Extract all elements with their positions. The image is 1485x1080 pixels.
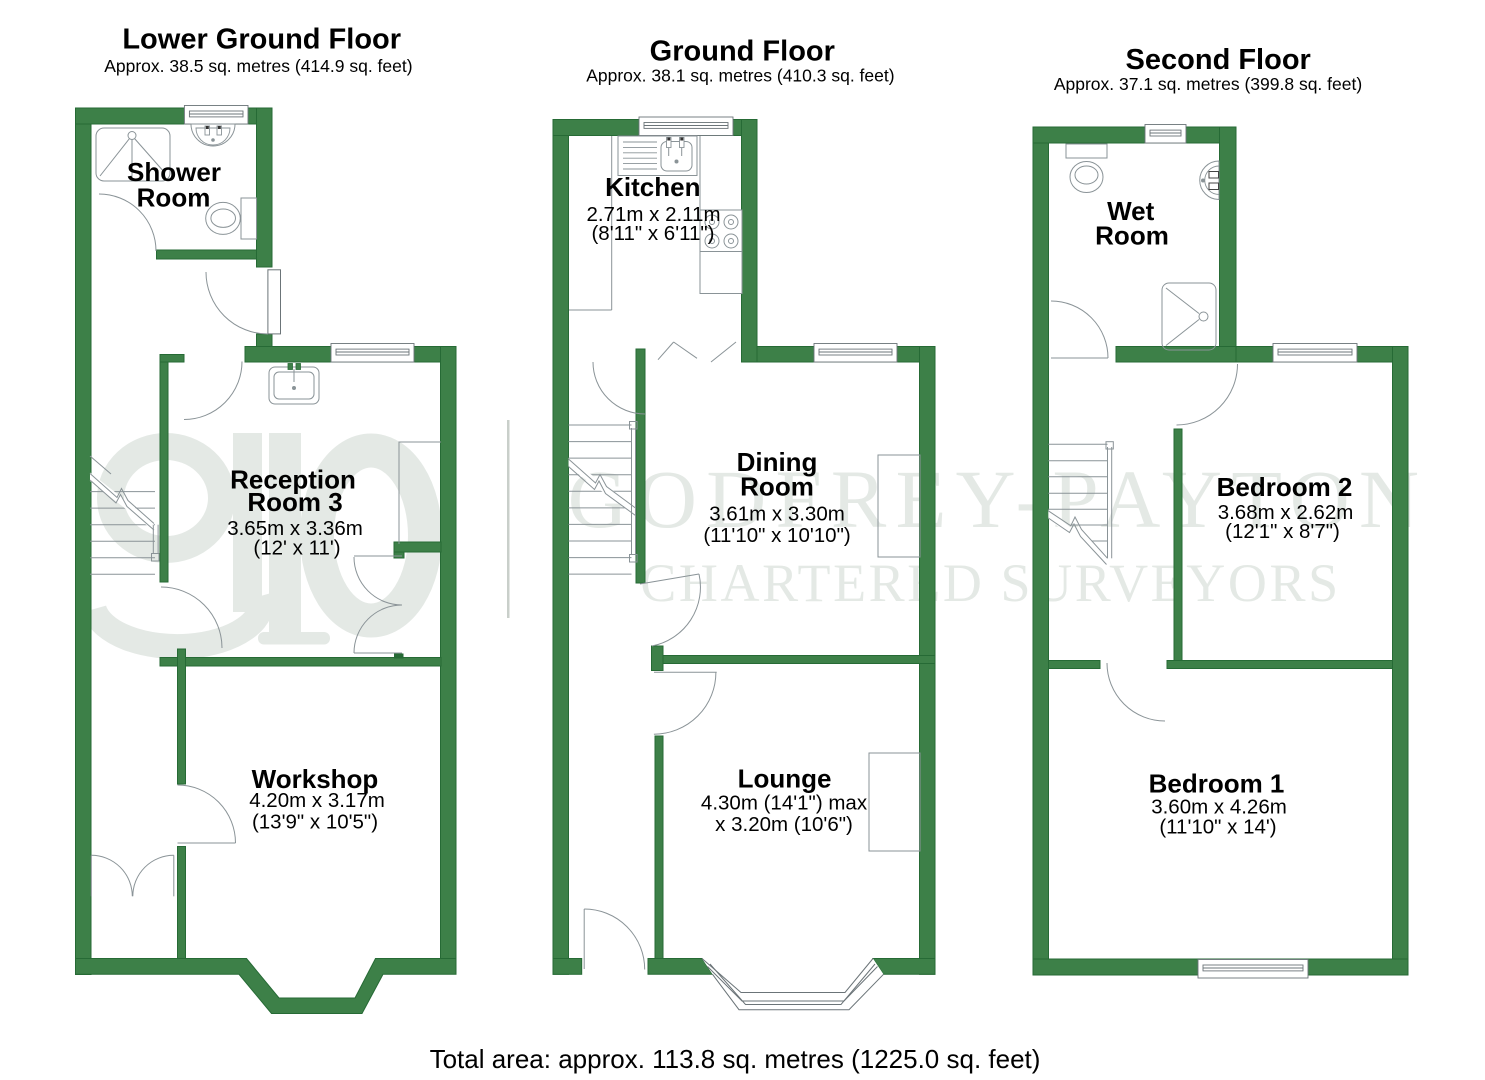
svg-text:(8'11" x 6'11"): (8'11" x 6'11")	[591, 222, 714, 245]
svg-text:CHARTERED SURVEYORS: CHARTERED SURVEYORS	[640, 553, 1340, 613]
svg-text:Approx. 38.1 sq. metres (410.3: Approx. 38.1 sq. metres (410.3 sq. feet)	[586, 66, 894, 86]
svg-text:Room 3: Room 3	[247, 487, 342, 517]
svg-text:Room: Room	[137, 183, 211, 213]
svg-text:(13'9" x 10'5"): (13'9" x 10'5")	[252, 811, 378, 834]
svg-text:(11'10" x 10'10"): (11'10" x 10'10")	[703, 524, 850, 547]
svg-text:Bedroom 1: Bedroom 1	[1149, 769, 1285, 799]
svg-text:Lower Ground Floor: Lower Ground Floor	[122, 23, 401, 55]
svg-text:x 3.20m (10'6"): x 3.20m (10'6")	[715, 813, 853, 836]
svg-text:Room: Room	[1095, 221, 1169, 251]
svg-text:3.61m x 3.30m: 3.61m x 3.30m	[709, 503, 845, 526]
svg-text:Approx. 37.1 sq. metres (399.8: Approx. 37.1 sq. metres (399.8 sq. feet)	[1054, 74, 1362, 94]
svg-text:Bedroom 2: Bedroom 2	[1217, 472, 1353, 502]
svg-text:(12' x 11'): (12' x 11')	[253, 537, 340, 560]
svg-text:Approx. 38.5 sq. metres (414.9: Approx. 38.5 sq. metres (414.9 sq. feet)	[104, 56, 412, 76]
svg-text:Ground Floor: Ground Floor	[650, 36, 835, 68]
svg-text:Kitchen: Kitchen	[605, 172, 700, 202]
svg-text:Total area: approx. 113.8 sq.: Total area: approx. 113.8 sq. metres (12…	[430, 1044, 1041, 1074]
svg-text:(11'10" x 14'): (11'10" x 14')	[1159, 816, 1276, 839]
svg-text:(12'1" x 8'7"): (12'1" x 8'7")	[1225, 520, 1340, 543]
svg-text:4.20m x 3.17m: 4.20m x 3.17m	[249, 789, 385, 812]
svg-text:Room: Room	[740, 472, 814, 502]
svg-text:Lounge: Lounge	[738, 764, 832, 794]
svg-text:Second Floor: Second Floor	[1126, 44, 1311, 76]
svg-text:4.30m (14'1") max: 4.30m (14'1") max	[701, 792, 868, 815]
